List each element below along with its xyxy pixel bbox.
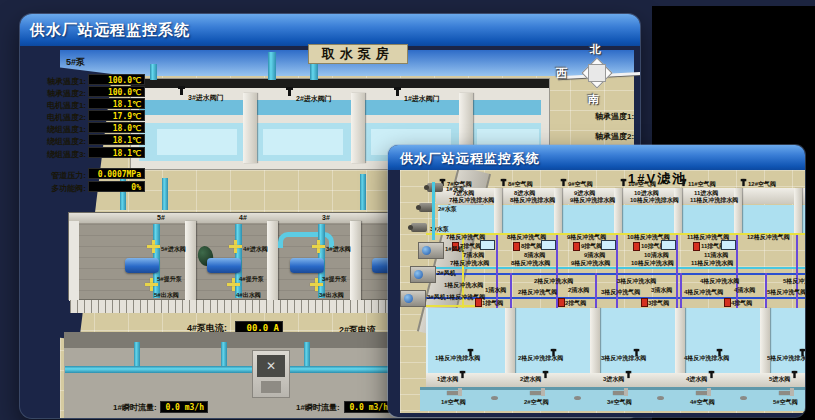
air-valve-icon[interactable] — [501, 179, 507, 186]
purple-pipe — [510, 273, 512, 308]
drain-valve-label: 7格反冲洗排水阀 — [449, 197, 494, 204]
inlet-valve-label: 5进水阀 — [769, 376, 790, 383]
pipe-elbow-icon — [624, 388, 628, 396]
pool-divider — [760, 308, 770, 373]
readout-label: 绕组温度1: — [24, 124, 86, 135]
backwash-water-valve-label: 7格反冲洗水阀 — [450, 260, 489, 267]
exhaust-valve-label: 4排气阀 — [731, 300, 752, 307]
flow-readout-value: 0.0 m3/h — [160, 401, 208, 413]
back-window-titlebar[interactable]: 供水厂站远程监控系统 — [20, 14, 640, 46]
bay-pump-label: 4#提升泵 — [239, 276, 264, 283]
bay-outlet-label: 3#出水阀 — [319, 292, 344, 299]
backwash-water-valve-label: 10格反冲洗水阀 — [631, 260, 674, 267]
water-pump-icon[interactable] — [427, 183, 443, 192]
blower-icon[interactable] — [418, 242, 444, 259]
bay-pump-label: 3#提升泵 — [322, 276, 347, 283]
trough-icon — [541, 240, 556, 250]
basin-panel — [263, 129, 343, 155]
exhaust-valve-icon[interactable] — [558, 298, 565, 307]
readout-label: 绕组温度3: — [24, 149, 86, 160]
blower-icon[interactable] — [410, 266, 436, 283]
inlet-valve-label: 4进水阀 — [686, 376, 707, 383]
backwash-air-valve-label: 2格反冲洗气阀 — [518, 289, 557, 296]
flowmeter-icon[interactable]: ✕ — [252, 350, 290, 398]
exhaust-valve-icon[interactable] — [475, 298, 482, 307]
purple-pipe — [680, 273, 682, 308]
flow-readout-label: 1#瞬时流量: — [296, 404, 340, 412]
exhaust-valve-label: 1排气阀 — [482, 300, 503, 307]
pool-divider — [675, 308, 685, 373]
exhaust-valve-label: 3排气阀 — [648, 300, 669, 307]
basin-pillar — [351, 93, 365, 163]
backwash-water-valve-label: 4格反冲洗水阀 — [700, 278, 739, 285]
purple-pipe — [595, 273, 597, 308]
inlet-valve-icon[interactable] — [312, 240, 325, 253]
clean-water-valve-label: 9清水阀 — [584, 252, 605, 259]
exhaust-valve-icon[interactable] — [513, 242, 520, 251]
inlet-valve-icon[interactable] — [460, 371, 466, 378]
inlet-valve-label: 2进水阀 — [520, 376, 541, 383]
exhaust-valve-label: 2排气阀 — [565, 300, 586, 307]
pool-divider — [590, 308, 600, 373]
clean-water-valve-label: 4清水阀 — [734, 287, 755, 294]
pool-divider — [614, 188, 622, 233]
clean-water-valve-label: 3清水阀 — [651, 287, 672, 294]
clean-water-valve-label: 7清水阀 — [463, 252, 484, 259]
lcd-value: 17.9℃ — [88, 110, 145, 121]
drain-port-icon — [740, 396, 747, 400]
drain-port-icon — [491, 396, 498, 400]
room-pillar — [185, 221, 196, 301]
purple-pipe — [496, 235, 498, 308]
drain-valve-label: 8格反冲洗排水阀 — [510, 197, 555, 204]
compass: 北 西 南 — [548, 40, 640, 112]
air-valve-label: 2#空气阀 — [524, 399, 549, 406]
air-valve-label: 3#空气阀 — [607, 399, 632, 406]
lift-pump-icon[interactable] — [290, 258, 324, 273]
bay-inlet-label: 5#进水阀 — [161, 246, 186, 253]
inlet-valve-icon[interactable] — [543, 371, 549, 378]
lift-pump-icon[interactable] — [207, 258, 241, 273]
equipment-label: 1#风机 — [445, 246, 464, 253]
clean-water-valve-label: 11清水阀 — [704, 252, 728, 259]
inlet-valve-label: 3进水阀 — [603, 376, 624, 383]
compass-south: 南 — [588, 92, 599, 107]
purple-pipe — [796, 235, 798, 308]
bay-outlet-label: 5#出水阀 — [154, 292, 179, 299]
lcd-value: 100.0℃ — [88, 86, 145, 97]
inlet-valve-icon[interactable] — [229, 240, 242, 253]
room-pillar — [267, 221, 278, 301]
front-window-titlebar[interactable]: 供水厂站远程监控系统 — [388, 145, 805, 170]
lcd-value: 0% — [88, 181, 145, 192]
air-valve-icon[interactable] — [681, 179, 687, 186]
purple-pipe — [676, 235, 678, 308]
readout-label: 电机温度2: — [24, 112, 86, 123]
clean-water-valve-label: 1清水阀 — [485, 287, 506, 294]
backwash-water-valve-label: 3格反冲洗水阀 — [617, 278, 656, 285]
drain-valve-label: 3格反冲洗排水阀 — [601, 355, 646, 362]
lcd-value: 100.0℃ — [88, 74, 145, 85]
flowmeter-screen: ✕ — [257, 355, 285, 377]
lcd-value: 18.1℃ — [88, 147, 145, 158]
back-window-title: 供水厂站远程监控系统 — [30, 21, 190, 38]
trough-icon — [661, 240, 676, 250]
bay-number: 5# — [157, 214, 165, 222]
purple-pipe — [736, 235, 738, 308]
current-readout-label: 4#泵电流: — [187, 324, 227, 332]
intake-valve-label: 3#进水阀门 — [188, 94, 224, 102]
pool-divider — [494, 188, 502, 233]
readout-label: 多功能阀: — [24, 183, 86, 194]
lcd-value: 0.0007MPa — [88, 168, 145, 179]
inlet-valve-label: 11进水阀 — [694, 190, 718, 197]
trough-icon — [480, 240, 495, 250]
cyan-pipe — [432, 182, 435, 240]
exhaust-valve-label: 8排气阀 — [521, 243, 542, 250]
drain-valve-label: 10格反冲洗排水阀 — [630, 197, 679, 204]
pipe — [360, 174, 366, 210]
basin-far-wall — [131, 79, 549, 88]
yellow-pipe — [426, 305, 482, 307]
bottom-pool-strip — [426, 308, 805, 373]
clean-water-valve-label: 10清水阀 — [644, 252, 669, 259]
backwash-water-valve-label: 1格反冲洗水阀 — [444, 282, 483, 289]
intake-pump-house-sign: 取水泵房 — [308, 44, 408, 64]
bay-inlet-label: 4#进水阀 — [243, 246, 268, 253]
bay-pump-label: 5#提升泵 — [157, 276, 182, 283]
air-valve-label: 12#空气阀 — [748, 181, 776, 188]
inlet-valve-icon[interactable] — [626, 371, 632, 378]
exhaust-valve-icon[interactable] — [573, 242, 580, 251]
drain-valve-label: 1格反冲洗排水阀 — [435, 355, 480, 362]
pipe — [268, 52, 276, 80]
inlet-valve-label: 10进水阀 — [634, 190, 659, 197]
air-valve-label: 1#空气阀 — [441, 399, 466, 406]
exhaust-valve-icon[interactable] — [724, 298, 731, 307]
exhaust-valve-label: 9排气阀 — [581, 243, 602, 250]
pipe-elbow-icon — [707, 388, 711, 396]
equipment-label: 2#水泵 — [438, 206, 457, 213]
air-valve-label: 9#空气阀 — [568, 181, 593, 188]
compass-star-inner — [588, 64, 606, 82]
drain-valve-label: 11格反冲洗排水阀 — [690, 197, 738, 204]
drain-valve-label: 4格反冲洗排水阀 — [684, 355, 729, 362]
air-valve-icon[interactable] — [621, 179, 627, 186]
equipment-label: 1#水泵 — [446, 186, 465, 193]
pool-divider — [505, 308, 515, 373]
readout-label: 管道压力: — [24, 170, 86, 181]
front-window-title: 供水厂站远程监控系统 — [400, 151, 540, 166]
inlet-valve-icon[interactable] — [147, 240, 160, 253]
intake-valve-label: 1#进水阀门 — [404, 95, 440, 103]
backwash-water-valve-label: 2格反冲洗水阀 — [534, 278, 573, 285]
bay-inlet-label: 3#进水阀 — [326, 246, 351, 253]
drain-valve-label: 5格反冲洗排水阀 — [767, 355, 805, 362]
air-valve-label: 5#空气阀 — [773, 399, 798, 406]
bay-outlet-label: 4#出水阀 — [236, 292, 261, 299]
lcd-value: 18.0℃ — [88, 122, 145, 133]
blower-icon[interactable] — [400, 290, 426, 307]
pool-divider — [794, 188, 802, 233]
backwash-air-valve-label: 12格反冲洗气阀 — [747, 234, 790, 241]
drain-port-icon — [574, 396, 581, 400]
purple-pipe — [616, 235, 618, 308]
room-pillar — [350, 221, 361, 301]
bay-number: 3# — [322, 214, 330, 222]
readout-label: 轴承温度1: — [24, 76, 86, 87]
exhaust-valve-icon[interactable] — [633, 242, 640, 251]
backwash-air-valve-label: 4格反冲洗气阀 — [684, 289, 723, 296]
flow-readout-value: 0.0 m3/h — [344, 401, 392, 413]
room-pillar — [69, 221, 79, 301]
flowmeter-base — [261, 381, 281, 393]
water-pump-icon[interactable] — [411, 223, 427, 232]
compass-north: 北 — [590, 42, 601, 57]
pool-divider — [554, 188, 562, 233]
pump-readout-panel: 5#泵 轴承温度1:100.0℃轴承温度2:100.0℃电机温度1:18.1℃电… — [20, 54, 180, 204]
drain-valve-label: 2格反冲洗排水阀 — [518, 355, 563, 362]
air-valve-icon[interactable] — [741, 179, 747, 186]
front-scene: 1#V滤池 7#空气阀7进水阀7格反冲洗排水阀7格反冲洗气阀7排气阀7清水阀7格… — [400, 170, 805, 413]
pipe-elbow-icon — [541, 388, 545, 396]
readout-label: 电机温度1: — [24, 100, 86, 111]
backwash-water-valve-label: 5格反冲洗水阀 — [783, 278, 805, 285]
readout-label: 绕组温度2: — [24, 136, 86, 147]
side-readout-label: 轴承温度2: — [595, 133, 634, 141]
trough-icon — [601, 240, 616, 250]
air-valve-label: 10#空气阀 — [628, 181, 656, 188]
equipment-label: 3#风机 — [427, 294, 446, 301]
air-valve-label: 4#空气阀 — [690, 399, 715, 406]
intake-valve-label: 2#进水阀门 — [296, 95, 332, 103]
clean-water-valve-label: 8清水阀 — [524, 252, 545, 259]
lcd-value: 18.1℃ — [88, 134, 145, 145]
pipe-elbow-icon — [458, 388, 462, 396]
exhaust-valve-icon[interactable] — [641, 298, 648, 307]
compass-west: 西 — [556, 66, 567, 81]
pump-panel-header: 5#泵 — [66, 58, 85, 66]
equipment-label: 2#风机 — [437, 270, 456, 277]
backwash-water-valve-label: 9格反冲洗水阀 — [571, 260, 610, 267]
trough-icon — [721, 240, 736, 250]
basin-pillar — [243, 93, 257, 163]
exhaust-valve-icon[interactable] — [693, 242, 700, 251]
lift-pump-icon[interactable] — [125, 258, 159, 273]
backwash-water-valve-label: 11格反冲洗水阀 — [691, 260, 733, 267]
pool-divider — [734, 188, 742, 233]
drain-port-icon — [657, 396, 664, 400]
backwash-water-valve-label: 8格反冲洗水阀 — [511, 260, 550, 267]
inlet-valve-icon[interactable] — [709, 371, 715, 378]
basin-upper-channel — [139, 100, 541, 115]
inlet-valve-label: 8进水阀 — [514, 190, 535, 197]
flow-readout-label: 1#瞬时流量: — [113, 404, 157, 412]
backwash-air-valve-label: 5格反冲洗气阀 — [767, 289, 805, 296]
lcd-value: 18.1℃ — [88, 98, 145, 109]
drain-valve-label: 9格反冲洗排水阀 — [570, 197, 615, 204]
air-valve-label: 8#空气阀 — [508, 181, 533, 188]
backwash-air-valve-label: 3格反冲洗气阀 — [601, 289, 640, 296]
side-readout-label: 轴承温度1: — [595, 113, 634, 121]
bay-number: 4# — [239, 214, 247, 222]
intake-gate-valve-icon[interactable] — [286, 87, 293, 96]
intake-gate-valve-icon[interactable] — [394, 87, 401, 96]
air-valve-label: 11#空气阀 — [688, 181, 716, 188]
air-valve-icon[interactable] — [561, 179, 567, 186]
readout-label: 轴承温度2: — [24, 88, 86, 99]
inlet-valve-label: 1进水阀 — [437, 376, 458, 383]
inlet-valve-label: 9进水阀 — [574, 190, 595, 197]
clean-water-valve-label: 2清水阀 — [568, 287, 589, 294]
pool-divider — [674, 188, 682, 233]
front-window: 供水厂站远程监控系统 1#V滤池 7#空气阀7进水阀7格反冲洗排水阀7格反冲 — [388, 145, 805, 417]
inlet-valve-icon[interactable] — [792, 371, 798, 378]
pipe-elbow-icon — [790, 388, 794, 396]
